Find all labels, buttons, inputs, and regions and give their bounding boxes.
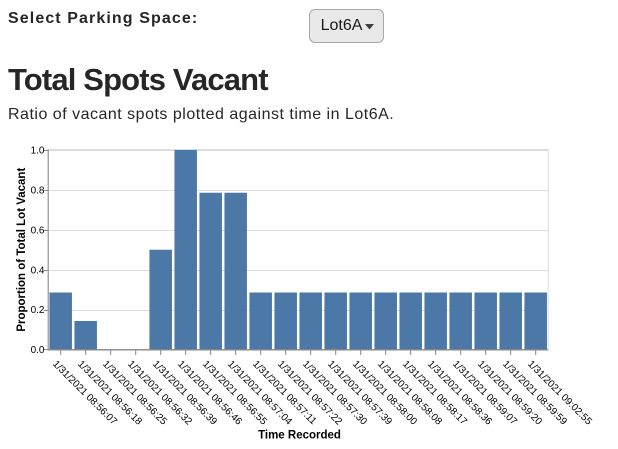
svg-text:0.2: 0.2 (31, 305, 45, 316)
svg-text:0.6: 0.6 (31, 225, 45, 236)
svg-text:Proportion of Total Lot Vacant: Proportion of Total Lot Vacant (16, 168, 28, 332)
svg-text:0.4: 0.4 (31, 265, 45, 276)
svg-text:Time Recorded: Time Recorded (258, 430, 341, 442)
svg-text:1.0: 1.0 (31, 146, 45, 157)
svg-text:0.0: 0.0 (31, 345, 45, 356)
svg-text:0.8: 0.8 (31, 186, 45, 197)
